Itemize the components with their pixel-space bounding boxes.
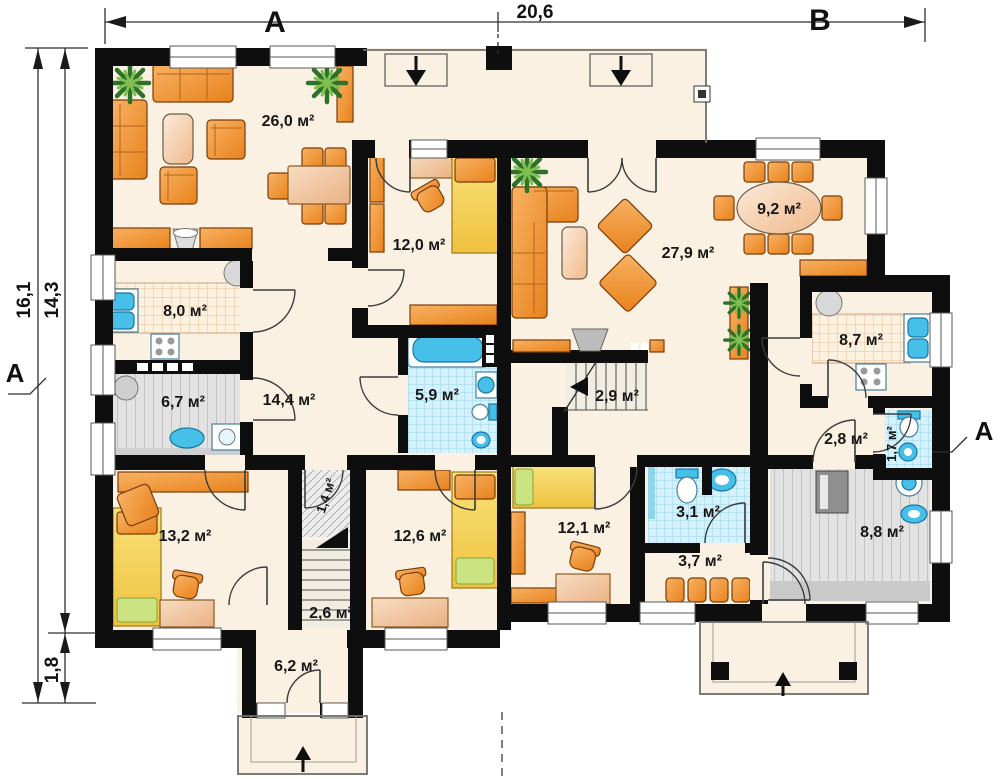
room-label-kitchen-a: 8,0 м²: [163, 303, 207, 320]
room-label-entry-a: 6,2 м²: [274, 658, 318, 675]
dining-table: [288, 166, 350, 204]
room-label-utility-a: 6,7 м²: [161, 394, 205, 411]
room-label-hall-b-small: 2,8 м²: [824, 431, 868, 448]
pillar: [486, 46, 512, 70]
toilet: [472, 405, 488, 420]
sink: [478, 377, 494, 393]
room-label-stairs-a: 2,6 м²: [309, 605, 353, 622]
room-label-dining-b: 9,2 м²: [757, 201, 801, 218]
sideboard-living-a: [108, 228, 252, 251]
plant-icon: [725, 289, 754, 318]
utility-b-mat: [770, 581, 930, 601]
room-label-bedroom-a2: 12,6 м²: [394, 528, 447, 545]
room-label-living-a: 26,0 м²: [262, 113, 315, 130]
room-label-living-b: 27,9 м²: [662, 245, 715, 262]
sideboard: [800, 260, 867, 276]
dimension-left: 16,1 14,3 1,8: [14, 48, 96, 703]
room-label-kitchen-b: 8,7 м²: [839, 332, 883, 349]
dresser: [410, 305, 497, 325]
section-letter: A: [975, 416, 994, 446]
room-label-bedroom-a1: 13,2 м²: [159, 528, 212, 545]
plant-icon: [508, 153, 546, 191]
dimension-left-total: 16,1: [14, 281, 35, 318]
room-label-bath-a: 5,9 м²: [415, 387, 459, 404]
boiler: [114, 376, 138, 400]
section-marker-left: A: [6, 358, 46, 394]
plant-icon: [111, 64, 149, 102]
room-label-stairs-b: 2,9 м²: [595, 388, 639, 405]
room-label-hall-b: 3,7 м²: [678, 553, 722, 570]
wardrobe: [398, 470, 450, 490]
plant-icon: [308, 64, 346, 102]
pillar: [839, 662, 857, 680]
coffee-table: [562, 227, 587, 279]
pillar: [711, 662, 729, 680]
room-label-room-a: 12,0 м²: [393, 237, 446, 254]
dimension-left-porch: 1,8: [42, 657, 63, 683]
room-label-bedroom-b: 12,1 м²: [558, 520, 611, 537]
fridge: [816, 290, 842, 316]
wc-b-shower-strip: [648, 467, 655, 519]
dimension-width: 20,6: [517, 2, 554, 23]
plant-icon: [725, 326, 754, 355]
section-letter: A: [6, 358, 25, 388]
desk: [556, 574, 610, 604]
dimension-section-a: A: [264, 6, 286, 39]
floor-plan: 26,0 м² 12,0 м² 8,0 м² 6,7 м² 14,4 м² 5,…: [0, 0, 1000, 779]
desk: [372, 598, 448, 627]
terrace-floor: [363, 48, 706, 143]
room-label-wc-b-small: 1,7 м²: [884, 426, 899, 462]
room-label-utility-b: 8,8 м²: [860, 524, 904, 541]
room-label-hall-a: 14,4 м²: [263, 392, 316, 409]
stove: [151, 334, 179, 359]
room-label-wc-b: 3,1 м²: [676, 504, 720, 521]
desk: [160, 600, 214, 627]
utility-sink: [170, 428, 204, 448]
dimension-section-b: B: [809, 4, 831, 37]
toilet: [677, 477, 697, 503]
sideboard: [513, 340, 570, 352]
dimension-left-main: 14,3: [42, 282, 63, 319]
coffee-table: [163, 114, 193, 164]
